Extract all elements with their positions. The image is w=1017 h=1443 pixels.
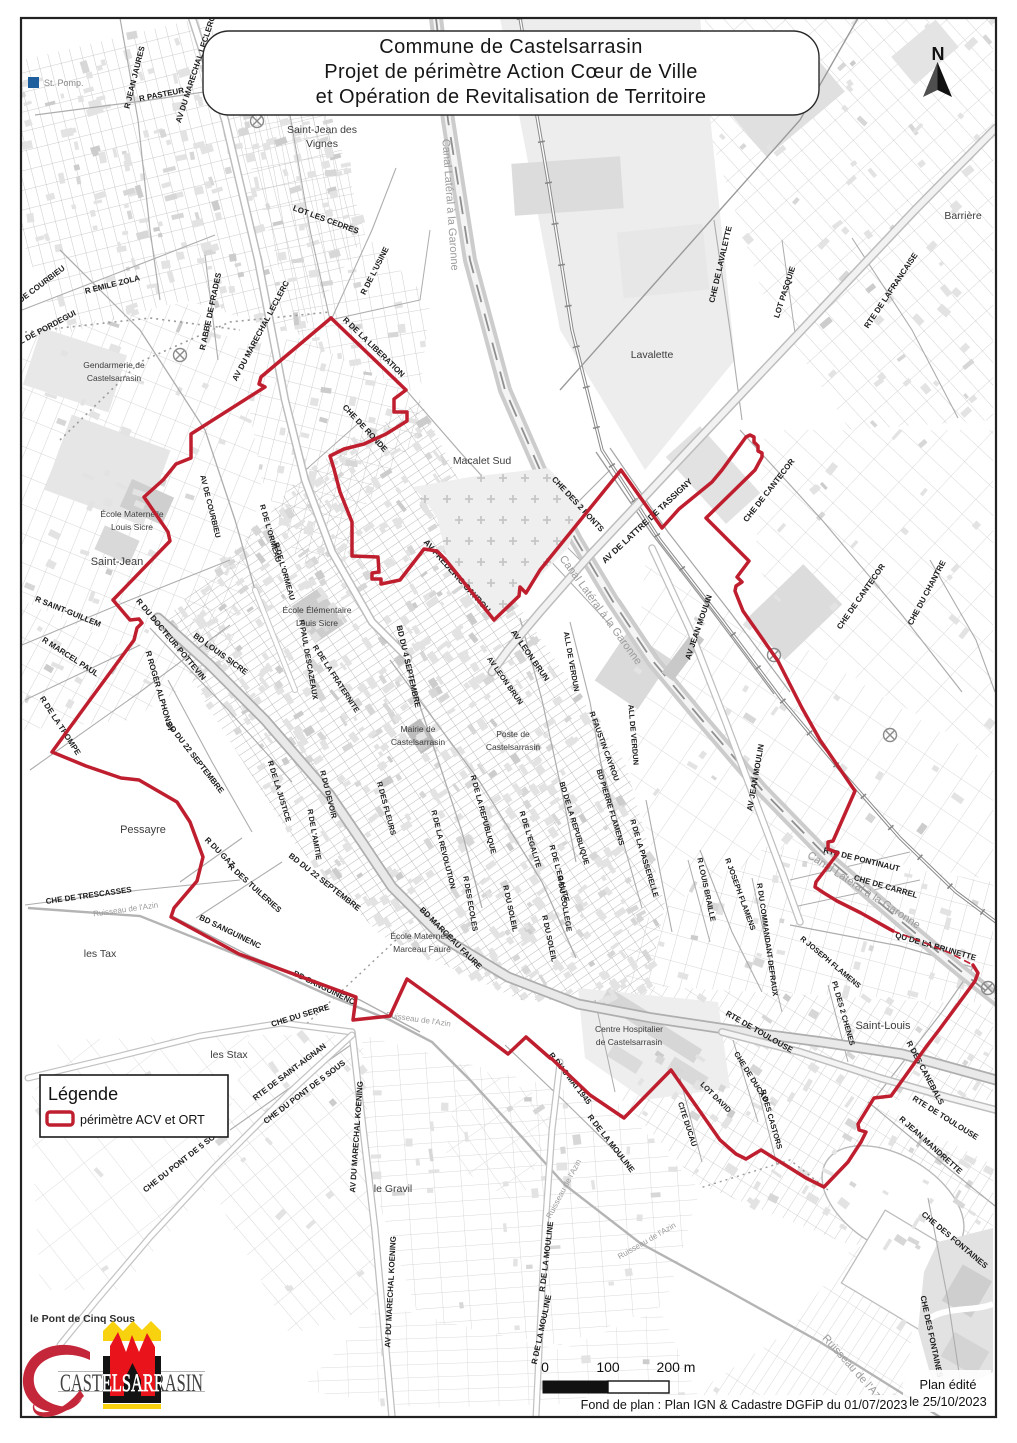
svg-text:Plan édité: Plan édité <box>920 1377 977 1392</box>
svg-text:100: 100 <box>596 1359 620 1375</box>
svg-text:Louis Sicre: Louis Sicre <box>111 522 153 532</box>
svg-text:le 25/10/2023: le 25/10/2023 <box>909 1394 987 1409</box>
svg-text:Louis Sicre: Louis Sicre <box>296 618 338 628</box>
svg-text:Marceau Fauré: Marceau Fauré <box>393 944 451 954</box>
svg-text:le Pont de Cinq Sous: le Pont de Cinq Sous <box>30 1313 135 1325</box>
svg-text:Pessayre: Pessayre <box>120 824 166 836</box>
svg-text:les Tax: les Tax <box>84 948 117 960</box>
svg-text:Castelsarrasin: Castelsarrasin <box>486 742 541 752</box>
svg-text:0: 0 <box>541 1359 549 1375</box>
svg-text:Barrière: Barrière <box>944 210 982 222</box>
svg-text:périmètre ACV et ORT: périmètre ACV et ORT <box>80 1113 205 1127</box>
svg-text:Castelsarrasin: Castelsarrasin <box>391 737 446 747</box>
svg-text:Saint-Louis: Saint-Louis <box>855 1020 911 1032</box>
svg-text:Poste de: Poste de <box>496 729 530 739</box>
svg-text:200 m: 200 m <box>657 1359 696 1375</box>
svg-text:École Élémentaire: École Élémentaire <box>283 605 352 615</box>
svg-text:Macalet Sud: Macalet Sud <box>453 455 512 467</box>
svg-text:N: N <box>932 44 945 64</box>
svg-text:Lavalette: Lavalette <box>631 349 674 361</box>
svg-text:et Opération de Revitalisation: et Opération de Revitalisation de Territ… <box>316 86 707 108</box>
svg-text:St. Pomp.: St. Pomp. <box>44 78 84 88</box>
svg-text:Mairie de: Mairie de <box>401 724 436 734</box>
svg-text:Saint-Jean des: Saint-Jean des <box>287 124 357 136</box>
svg-text:le Gravil: le Gravil <box>374 1183 413 1195</box>
svg-text:les Stax: les Stax <box>210 1049 248 1061</box>
svg-text:Commune de Castelsarrasin: Commune de Castelsarrasin <box>379 36 642 58</box>
svg-text:École Maternelle: École Maternelle <box>390 931 454 941</box>
svg-text:Légende: Légende <box>48 1084 118 1104</box>
svg-text:Castelsarrasin: Castelsarrasin <box>87 373 142 383</box>
svg-text:de Castelsarrasin: de Castelsarrasin <box>596 1037 662 1047</box>
svg-text:Gendarmerie de: Gendarmerie de <box>83 360 145 370</box>
svg-text:Saint-Jean: Saint-Jean <box>91 556 144 568</box>
svg-text:Vignes: Vignes <box>306 138 338 150</box>
svg-text:Fond de plan : Plan IGN & Cada: Fond de plan : Plan IGN & Cadastre DGFiP… <box>581 1398 908 1412</box>
svg-text:Centre Hospitalier: Centre Hospitalier <box>595 1024 663 1034</box>
svg-text:Projet de périmètre Action Cœu: Projet de périmètre Action Cœur de Ville <box>324 61 698 83</box>
